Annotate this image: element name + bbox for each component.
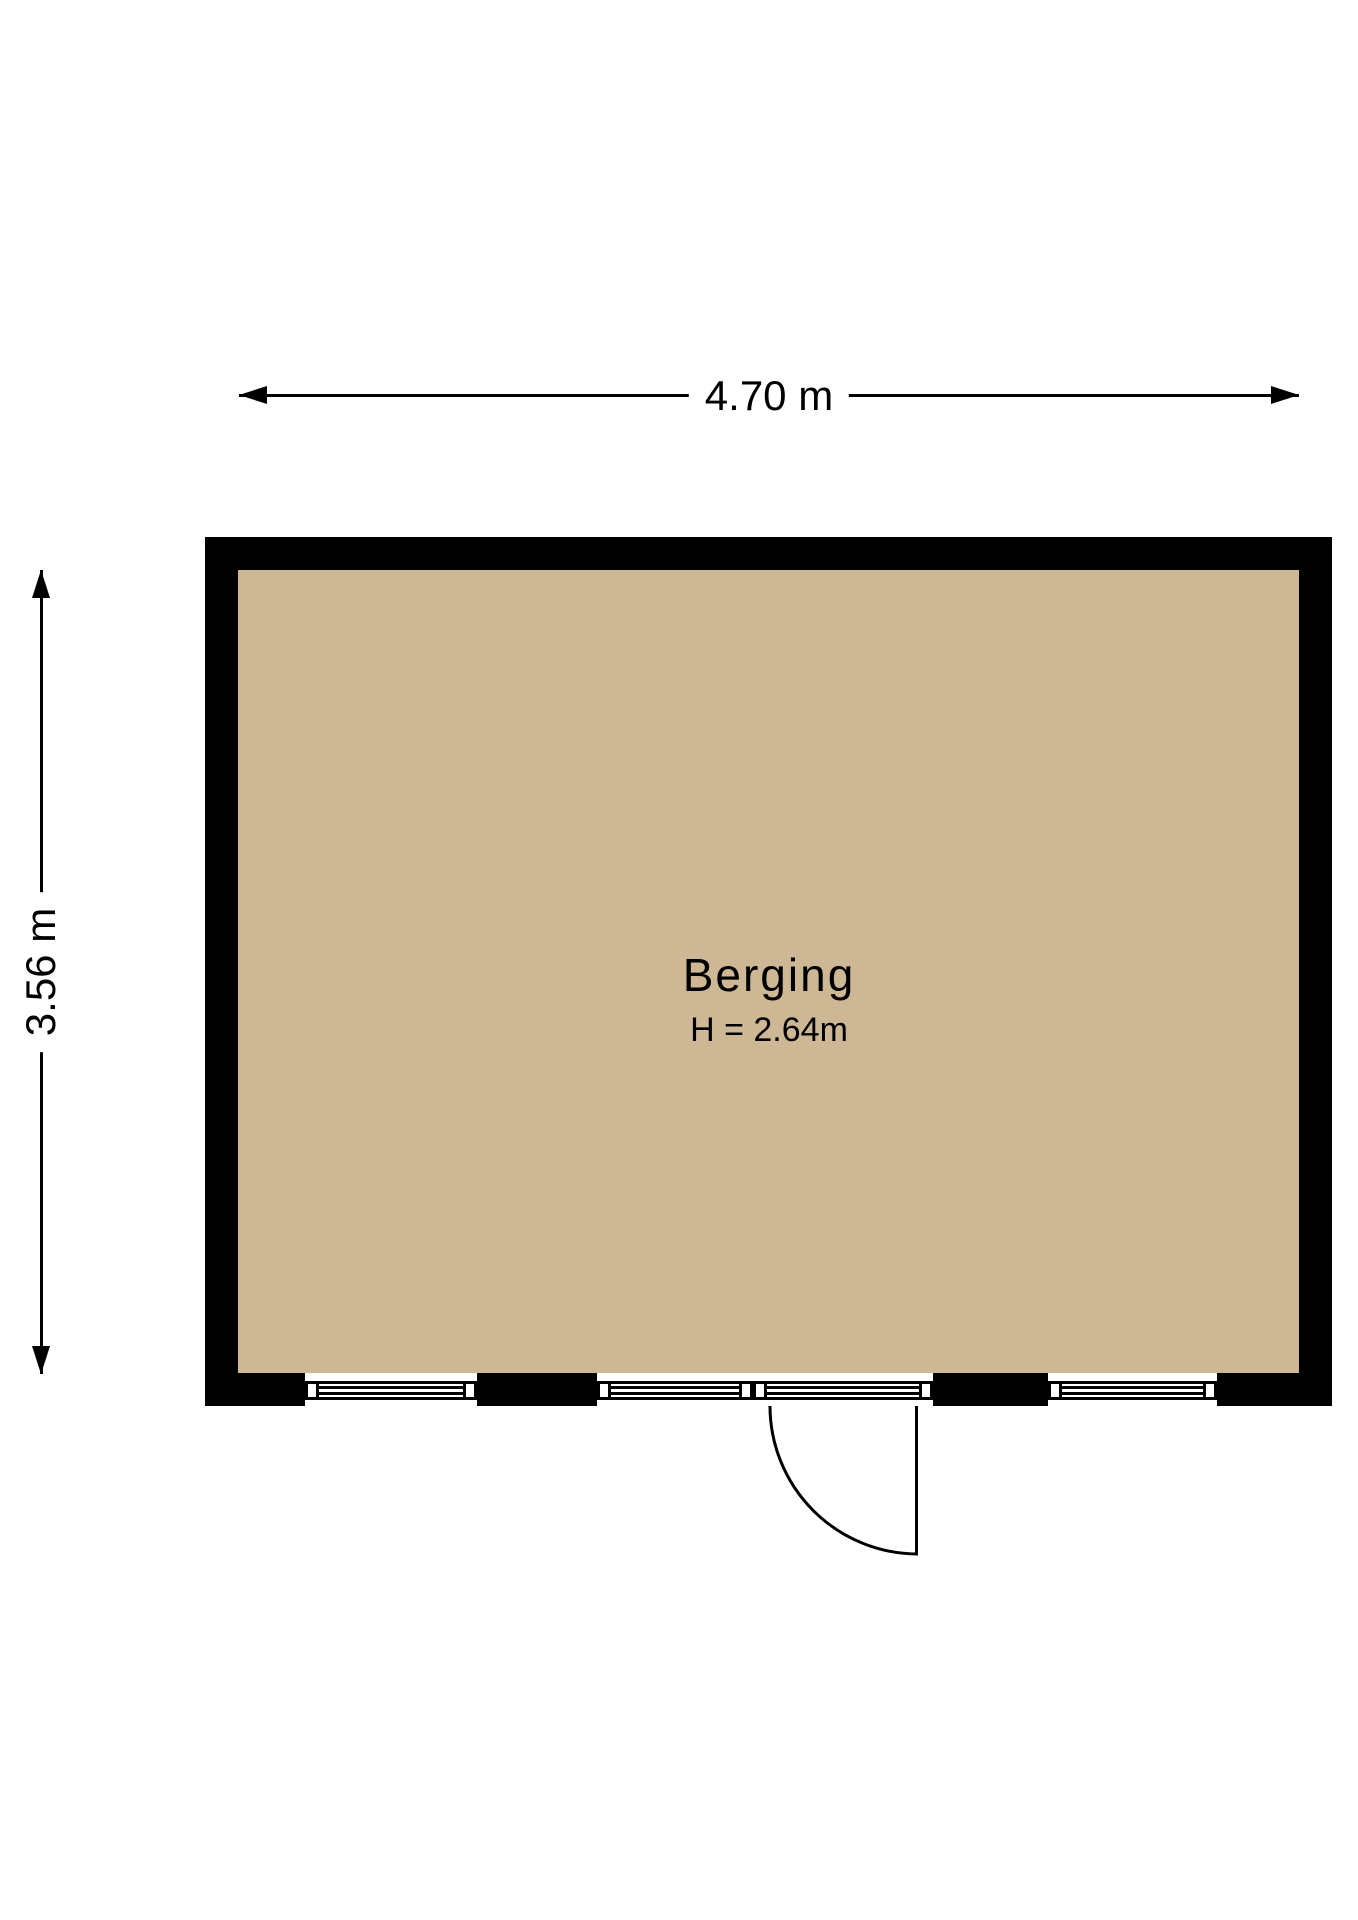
window-glazing xyxy=(611,1381,739,1400)
door-glazing xyxy=(767,1381,919,1400)
height-arrow-down-icon xyxy=(32,1346,50,1374)
bottom-wall-window-b xyxy=(597,1373,753,1406)
height-arrow-up-icon xyxy=(32,570,50,598)
window-glazing xyxy=(1062,1381,1203,1400)
window-frame xyxy=(1048,1381,1217,1400)
window-post xyxy=(1203,1381,1217,1400)
width-dimension-label: 4.70 m xyxy=(689,372,849,420)
window-frame xyxy=(597,1381,753,1400)
room-label: Berging H = 2.64m xyxy=(683,950,856,1050)
window-post xyxy=(1048,1381,1062,1400)
door-post xyxy=(753,1381,767,1400)
door-frame xyxy=(753,1381,933,1400)
floorplan-canvas: 4.70 m 3.56 m Berging H = 2.64m xyxy=(0,0,1358,1920)
width-arrow-right-icon xyxy=(1271,386,1299,404)
bottom-wall-window-a xyxy=(305,1373,477,1406)
height-dimension-label: 3.56 m xyxy=(17,892,65,1052)
window-post xyxy=(463,1381,477,1400)
window-post xyxy=(739,1381,753,1400)
bottom-wall-window-c xyxy=(1048,1373,1217,1406)
room-ceiling-height: H = 2.64m xyxy=(683,1010,856,1050)
window-frame xyxy=(305,1381,477,1400)
width-arrow-left-icon xyxy=(239,386,267,404)
window-post xyxy=(597,1381,611,1400)
door-swing-arc xyxy=(765,1401,925,1561)
window-post xyxy=(305,1381,319,1400)
window-glazing xyxy=(319,1381,463,1400)
door-post xyxy=(919,1381,933,1400)
room-name: Berging xyxy=(683,950,856,1000)
